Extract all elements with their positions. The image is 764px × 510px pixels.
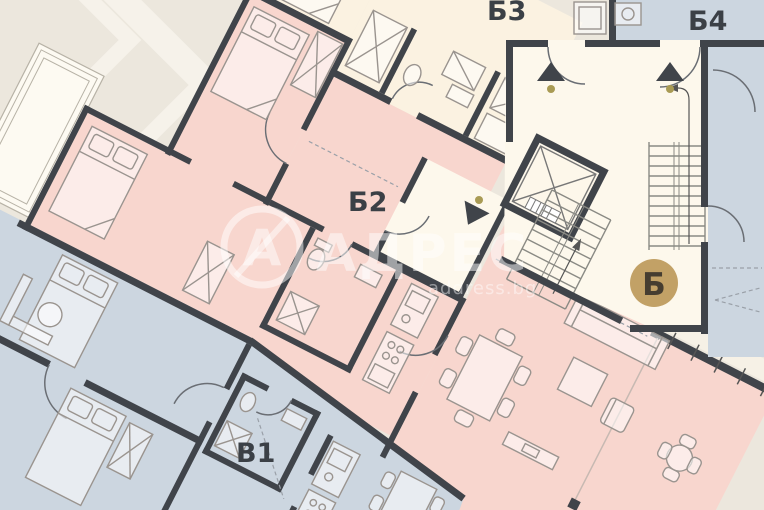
floor-plan-page: Б3 Б4 Б2 В1 Б А АДРЕС address.bg bbox=[0, 0, 764, 510]
floor-plan-svg: Б3 Б4 Б2 В1 Б А АДРЕС address.bg bbox=[0, 0, 764, 510]
label-apartment-v1: В1 bbox=[236, 438, 275, 469]
watermark-site-text: address.bg bbox=[428, 278, 537, 299]
label-apartment-b4: Б4 bbox=[688, 6, 727, 37]
entrance-badge: Б bbox=[630, 259, 678, 307]
brand-logo-letter: А bbox=[243, 219, 282, 277]
label-apartment-b3: Б3 bbox=[487, 0, 526, 27]
entrance-badge-letter: Б bbox=[642, 267, 666, 303]
watermark-brand-text: АДРЕС bbox=[316, 224, 529, 284]
label-apartment-b2: Б2 bbox=[348, 187, 387, 218]
